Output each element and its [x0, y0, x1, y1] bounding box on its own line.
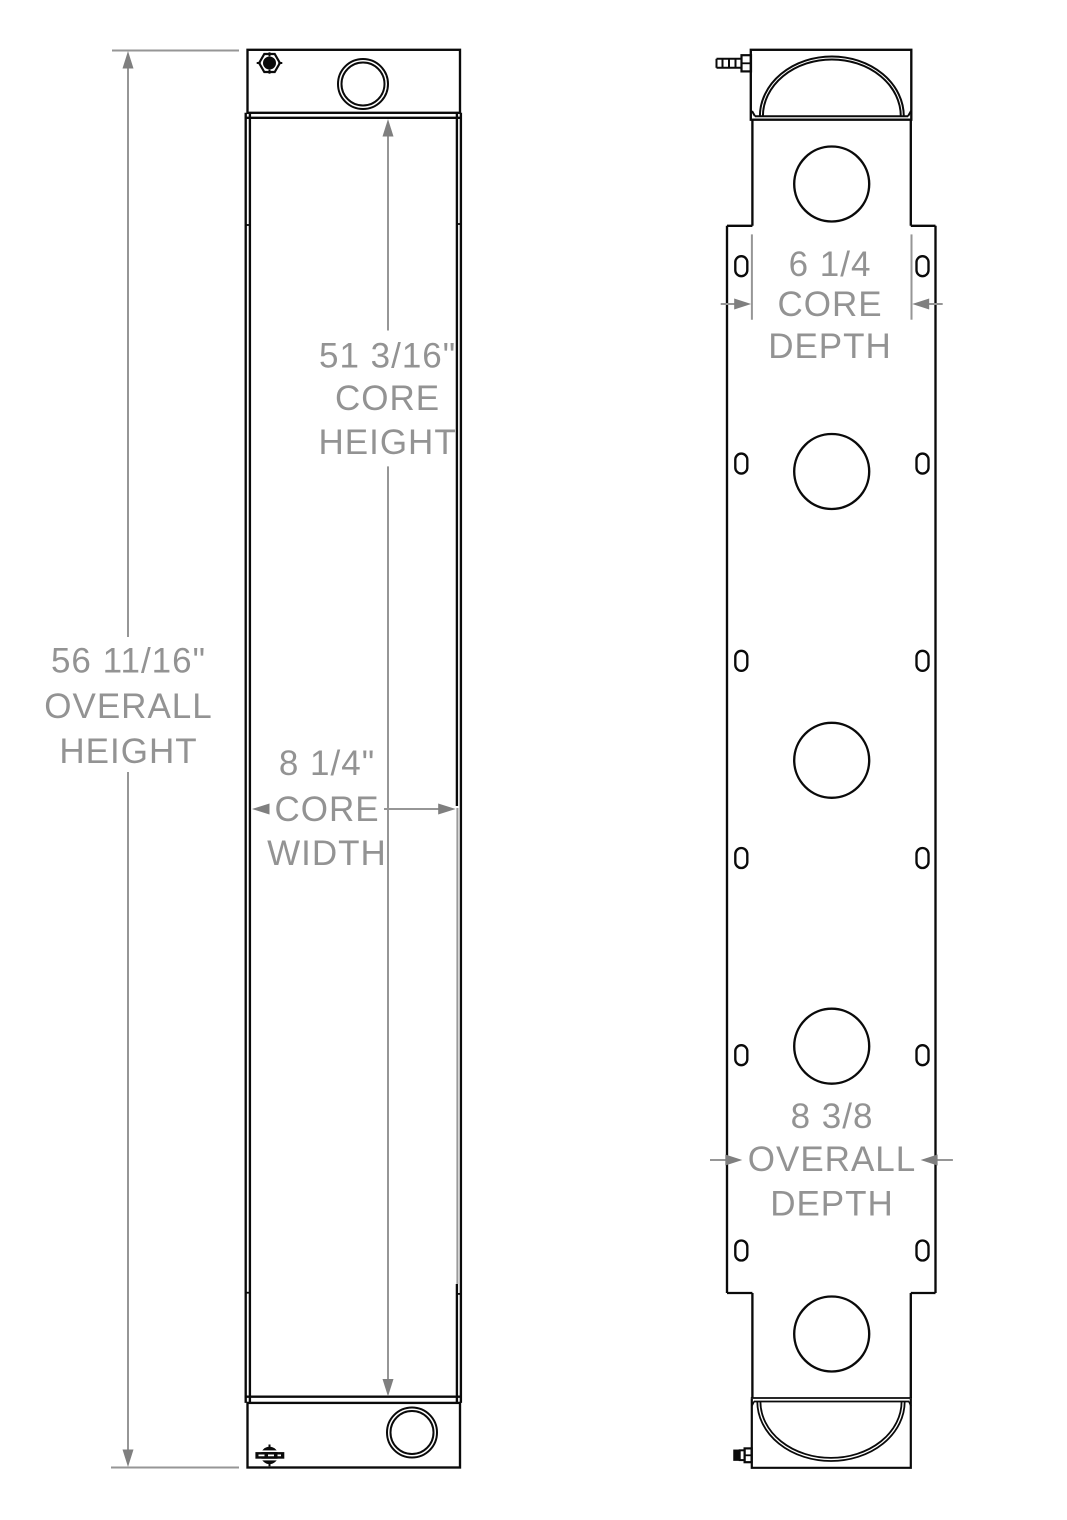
svg-text:HEIGHT: HEIGHT	[59, 732, 197, 771]
svg-text:8 1/4": 8 1/4"	[279, 744, 375, 783]
svg-text:56 11/16": 56 11/16"	[51, 642, 206, 681]
svg-text:8 3/8: 8 3/8	[791, 1097, 874, 1136]
svg-text:6 1/4: 6 1/4	[789, 245, 872, 284]
svg-text:DEPTH: DEPTH	[768, 327, 892, 366]
svg-text:CORE: CORE	[335, 379, 440, 418]
svg-text:51 3/16": 51 3/16"	[319, 337, 456, 376]
svg-text:OVERALL: OVERALL	[748, 1140, 916, 1179]
svg-text:CORE: CORE	[777, 285, 882, 324]
svg-text:DEPTH: DEPTH	[770, 1185, 894, 1224]
svg-text:HEIGHT: HEIGHT	[318, 423, 456, 462]
svg-text:WIDTH: WIDTH	[267, 834, 387, 873]
svg-text:CORE: CORE	[274, 790, 379, 829]
svg-text:OVERALL: OVERALL	[44, 687, 212, 726]
